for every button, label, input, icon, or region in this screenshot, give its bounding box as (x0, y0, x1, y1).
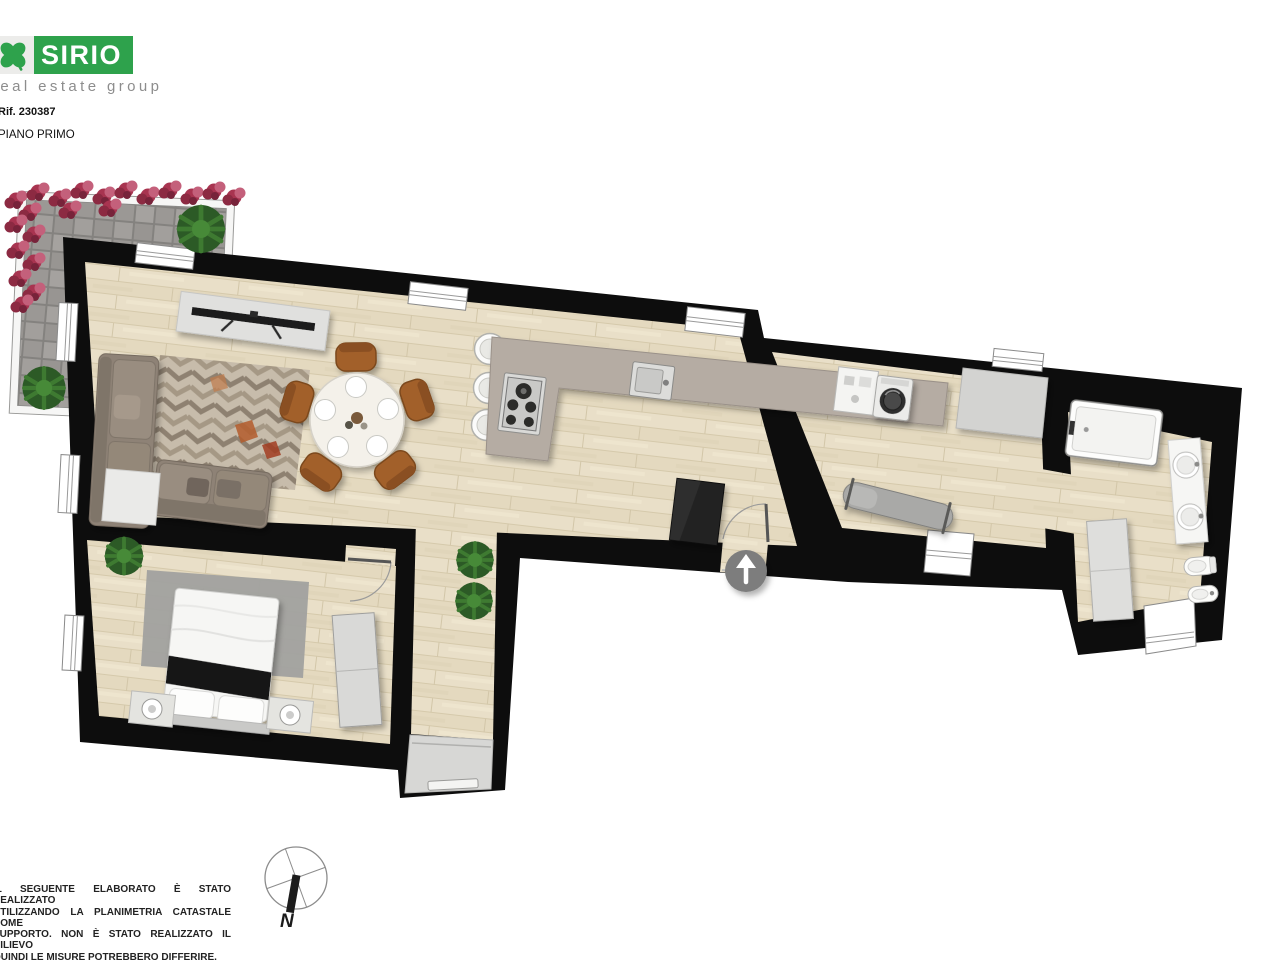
side-table (102, 469, 160, 526)
laundry-worktop (956, 368, 1048, 438)
double-bed (158, 587, 284, 734)
north-label: N (280, 911, 295, 932)
disclaimer-line: UTILIZZANDO LA PLANIMETRIA CATASTALE COM… (0, 907, 231, 930)
nightstand (128, 691, 175, 727)
floor-label: PIANO PRIMO (0, 129, 75, 141)
shower-tray (1065, 400, 1163, 467)
compass-rose: N (256, 838, 335, 932)
bay-window (428, 779, 478, 791)
north-needle-icon (286, 874, 300, 913)
nightstand (266, 697, 313, 733)
logo-text: SIRIO (34, 36, 133, 74)
plant-icon (177, 205, 225, 253)
floorplan-drawing: N (0, 0, 1280, 960)
bathroom-column-cabinet (1087, 519, 1134, 622)
toilet (1183, 556, 1216, 577)
plant-icon (105, 537, 143, 575)
window-left-3 (62, 615, 84, 671)
kitchen-sink (629, 362, 675, 401)
wardrobe (332, 613, 382, 728)
window-left-2 (58, 455, 80, 514)
laundry-bath-passage (1032, 468, 1080, 534)
disclaimer-line: QUINDI LE MISURE POTREBBERO DIFFERIRE. (0, 952, 231, 960)
floorplan-page: N SIRIO real estate group Rif. 230387 PI… (0, 0, 1280, 960)
clover-icon (0, 36, 34, 74)
cooktop (498, 373, 547, 436)
plant-icon (456, 541, 493, 578)
disclaimer-line: SUPPORTO. NON È STATO REALIZZATO IL RILI… (0, 929, 231, 952)
washing-machine (873, 375, 914, 421)
window-laundry-bottom (924, 530, 974, 576)
brand-block: SIRIO real estate group (0, 36, 162, 95)
logo-tagline: real estate group (0, 78, 162, 95)
bidet (1187, 585, 1218, 604)
window-left-1 (56, 303, 78, 362)
reference-number: Rif. 230387 (0, 106, 55, 118)
kitchen-cabinet-dark (669, 478, 724, 545)
plant-icon (455, 582, 492, 619)
laundry-cabinet (833, 367, 878, 416)
window-bathroom-bottom (1144, 598, 1196, 654)
disclaimer: IL SEGUENTE ELABORATO È STATO REALIZZATO… (0, 884, 231, 960)
plant-icon (22, 366, 65, 409)
entrance-marker (725, 550, 767, 592)
disclaimer-line: IL SEGUENTE ELABORATO È STATO REALIZZATO (0, 884, 231, 907)
